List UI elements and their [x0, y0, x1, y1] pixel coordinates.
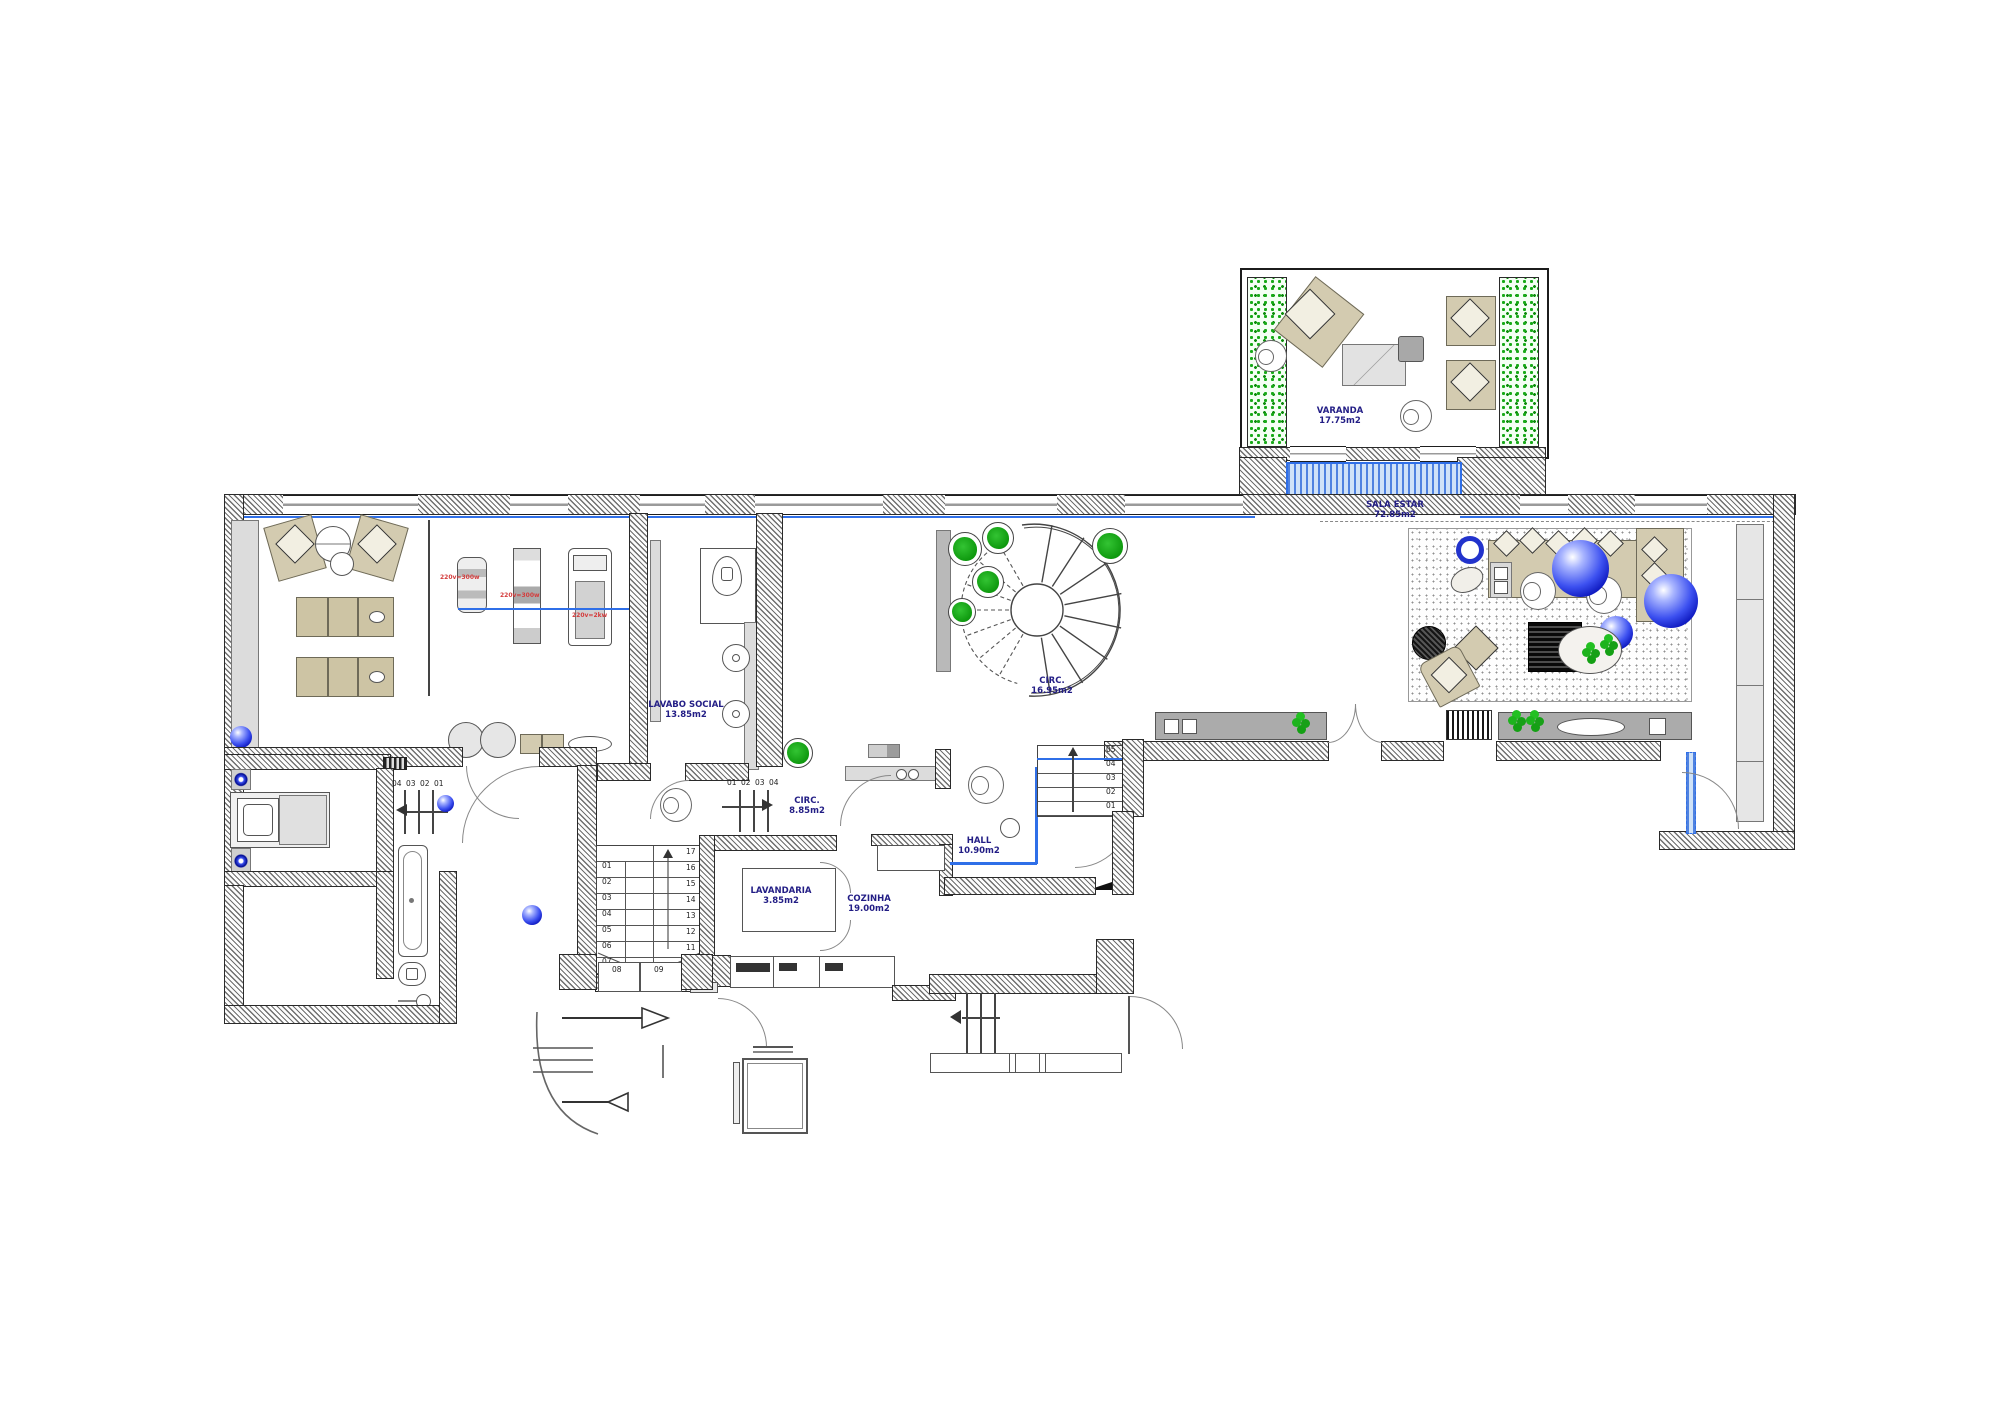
step-number: 04 — [392, 780, 402, 788]
kitchen-counter — [845, 766, 939, 781]
equipment-power-note: 220v=2kw — [572, 612, 607, 619]
massage-bed-icon — [296, 597, 394, 637]
bed-icon — [230, 792, 330, 848]
plant-clover-icon — [1526, 716, 1535, 725]
sala-glazing-band — [1286, 462, 1462, 498]
bookshelf-icon — [1446, 710, 1492, 740]
bench-line — [753, 1046, 793, 1048]
ceiling-fan-icon — [1456, 536, 1484, 564]
stair-arrow-icon — [396, 804, 407, 816]
stair-direction-line — [722, 806, 762, 808]
room-label-circ-main: CIRC. 16.95m2 — [1020, 676, 1084, 696]
step-number: 08 — [612, 966, 622, 974]
exterior-landing — [930, 1053, 1122, 1073]
light-fixture-icon — [231, 769, 251, 790]
veranda-pillar-left — [1240, 458, 1286, 496]
room-label-cozinha: COZINHA 19.00m2 — [838, 894, 900, 914]
step-number: 02 — [602, 878, 612, 886]
open-boundary-dashed — [1320, 521, 1795, 522]
step-number: 02 — [741, 779, 751, 787]
wall — [1497, 742, 1660, 760]
window — [755, 495, 883, 515]
window — [283, 495, 418, 515]
blue-sphere-lamp-icon — [522, 905, 542, 925]
wall — [225, 755, 390, 769]
equipment-power-note: 220v=300w — [440, 574, 480, 581]
toilet-icon — [712, 556, 742, 596]
light-fixture-icon — [231, 848, 251, 874]
elevator-box-icon — [742, 1058, 808, 1134]
room-label-hall: HALL 10.90m2 — [948, 836, 1010, 856]
stair-arrow-icon — [950, 1010, 961, 1024]
blue-sphere-large-icon — [1552, 540, 1609, 597]
person-icon — [660, 788, 692, 822]
floor-object-icon — [1000, 818, 1020, 838]
wall — [1382, 742, 1443, 760]
tall-cabinet-icon — [1736, 524, 1764, 822]
plant-icon — [982, 522, 1014, 554]
toilet-icon — [398, 962, 426, 986]
wall — [682, 955, 712, 989]
wall-panel — [650, 540, 661, 722]
stair-direction-line — [962, 1017, 1000, 1019]
door-arc — [1130, 996, 1183, 1049]
partition-line — [428, 520, 430, 696]
stair-arrow-icon — [762, 799, 773, 811]
counter-run — [730, 956, 895, 988]
window — [510, 495, 568, 515]
step-line — [739, 790, 741, 832]
step-number: 03 — [755, 779, 765, 787]
step-number: 06 — [602, 942, 612, 950]
veranda-window — [1290, 446, 1346, 462]
step-number: 16 — [686, 864, 696, 872]
veranda-table-icon — [1342, 344, 1406, 386]
step-number: 04 — [602, 910, 612, 918]
door-arc — [840, 775, 891, 826]
step-number: 11 — [686, 944, 696, 952]
wall — [700, 836, 714, 960]
section-line — [458, 608, 648, 610]
step-line — [994, 993, 996, 1053]
wall — [630, 514, 647, 766]
hedge-right-icon — [1499, 277, 1539, 447]
exterior-wall-right — [1774, 495, 1794, 848]
wall — [440, 872, 456, 1023]
room-label-circ-small: CIRC. 8.85m2 — [780, 796, 834, 816]
step-number: 17 — [686, 848, 696, 856]
door-arc — [820, 862, 851, 893]
plant-clover-icon — [1600, 640, 1609, 649]
step-number: 13 — [686, 912, 696, 920]
veranda-pillar-right — [1458, 458, 1545, 496]
appliance-tag — [736, 963, 770, 972]
veranda-stool-icon — [1398, 336, 1424, 362]
wall — [225, 872, 390, 886]
massage-bed-icon — [296, 657, 394, 697]
step-number: 09 — [654, 966, 664, 974]
person-icon — [968, 766, 1004, 804]
wall — [686, 764, 748, 780]
plant-icon — [972, 566, 1004, 598]
wall-bottom-right-wing — [1660, 832, 1794, 849]
stair-arrow-icon — [663, 849, 673, 858]
door-arc — [820, 920, 851, 951]
exercise-ball-icon — [480, 722, 516, 758]
stair-direction-line — [1072, 756, 1074, 812]
door-arc — [1682, 772, 1739, 829]
window — [640, 495, 705, 515]
step-number: 02 — [420, 780, 430, 788]
elevator-rail — [733, 1062, 740, 1124]
window — [1635, 495, 1707, 515]
wall — [930, 975, 1115, 993]
treadmill-icon — [568, 548, 612, 646]
plant-icon — [1092, 528, 1128, 564]
wall — [700, 836, 836, 850]
step-number: 12 — [686, 928, 696, 936]
glazing-line — [1460, 516, 1790, 518]
step-number: 01 — [434, 780, 444, 788]
step-number: 03 — [1106, 774, 1116, 782]
room-label-sala-estar: SALA ESTAR 72.85m2 — [1350, 500, 1440, 520]
room-label-lavandaria: LAVANDARIA 3.85m2 — [748, 886, 814, 906]
plant-icon — [948, 598, 976, 626]
bench-line — [753, 1051, 793, 1053]
side-table-icon — [1490, 562, 1512, 598]
round-table-icon — [330, 552, 354, 576]
step-line — [966, 993, 968, 1053]
person-icon — [1400, 400, 1432, 432]
step-number: 14 — [686, 896, 696, 904]
blue-sphere-lamp-icon — [230, 726, 252, 748]
wall — [578, 766, 596, 978]
plant-clover-icon — [1508, 716, 1517, 725]
appliance-tag — [779, 963, 797, 971]
wall-panel — [231, 520, 259, 750]
step-number: 04 — [1106, 760, 1116, 768]
step-number: 04 — [769, 779, 779, 787]
wall — [225, 886, 243, 1023]
wall — [1113, 812, 1133, 894]
step-number: 02 — [1106, 788, 1116, 796]
wall — [945, 878, 1095, 894]
window — [1520, 495, 1568, 515]
window — [1125, 495, 1243, 515]
wall — [598, 764, 650, 780]
sideboard-icon — [1155, 712, 1327, 740]
wall — [377, 769, 393, 872]
potted-plant-icon — [783, 738, 813, 768]
plant-icon — [948, 532, 982, 566]
room-label-lavabo-social: LAVABO SOCIAL 13.85m2 — [638, 700, 734, 720]
wall — [872, 835, 952, 845]
wall — [1097, 940, 1133, 993]
exercise-bike-icon — [457, 557, 487, 613]
step-number: 05 — [602, 926, 612, 934]
wall — [377, 872, 393, 978]
bathtub-icon — [398, 845, 428, 957]
step-line — [980, 993, 982, 1053]
hall-boundary-line — [950, 862, 1037, 865]
person-icon — [1520, 572, 1556, 610]
wall — [225, 1006, 443, 1023]
person-icon — [1255, 340, 1287, 372]
step-number: 05 — [1106, 746, 1116, 754]
blue-sphere-large-icon — [1644, 574, 1698, 628]
step-number: 01 — [602, 862, 612, 870]
step-line — [767, 790, 769, 832]
appliance-tag — [825, 963, 843, 971]
floor-plan-canvas: VARANDA 17.75m2 — [0, 0, 2000, 1414]
wall — [560, 955, 596, 989]
room-label-varanda: VARANDA 17.75m2 — [1295, 406, 1385, 426]
double-door-arc — [1355, 704, 1383, 743]
wall — [757, 514, 782, 766]
step-number: 03 — [406, 780, 416, 788]
gym-mat-icon — [520, 734, 542, 754]
step-number: 03 — [602, 894, 612, 902]
stair-arrow-icon — [1068, 747, 1078, 756]
sink-icon — [722, 644, 750, 672]
cooktop-icon — [868, 744, 900, 758]
double-door-arc — [1328, 704, 1356, 743]
step-number: 01 — [1106, 802, 1116, 810]
equipment-power-note: 220v=300w — [500, 592, 540, 599]
blue-sphere-lamp-icon — [437, 795, 454, 812]
wall — [936, 750, 950, 788]
wall — [1123, 740, 1143, 816]
kitchen-island — [877, 845, 945, 871]
step-line — [753, 790, 755, 832]
step-number: 01 — [727, 779, 737, 787]
plant-clover-icon — [1582, 648, 1591, 657]
wall — [540, 748, 596, 766]
plant-clover-icon — [1292, 718, 1301, 727]
step-number: 15 — [686, 880, 696, 888]
